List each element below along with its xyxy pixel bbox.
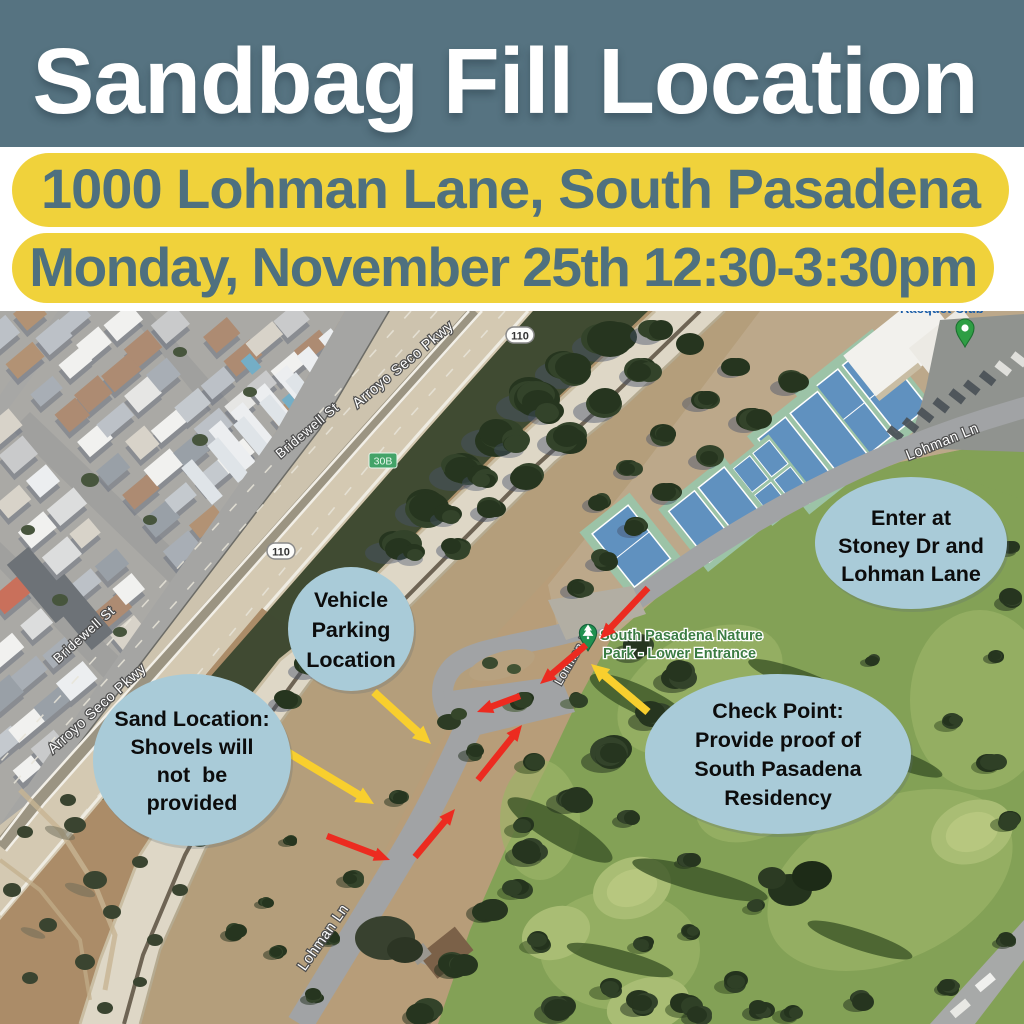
svg-text:Stoney Dr and: Stoney Dr and bbox=[838, 534, 984, 558]
svg-text:Enter at: Enter at bbox=[871, 506, 951, 530]
svg-text:Shovels will: Shovels will bbox=[130, 735, 253, 759]
svg-text:South Pasadena: South Pasadena bbox=[694, 757, 862, 781]
svg-text:Racquet Club: Racquet Club bbox=[900, 311, 984, 316]
svg-text:not be: not be bbox=[157, 763, 228, 787]
svg-text:Sand Location:: Sand Location: bbox=[114, 707, 269, 731]
svg-text:South Pasadena Nature: South Pasadena Nature bbox=[600, 628, 763, 644]
svg-text:30B: 30B bbox=[374, 456, 393, 468]
svg-text:provided: provided bbox=[147, 791, 238, 815]
svg-text:Park - Lower Entrance: Park - Lower Entrance bbox=[603, 646, 756, 662]
svg-text:Vehicle: Vehicle bbox=[314, 588, 388, 612]
svg-text:Residency: Residency bbox=[724, 786, 832, 810]
svg-text:110: 110 bbox=[272, 547, 290, 559]
svg-text:Provide proof of: Provide proof of bbox=[695, 728, 862, 752]
svg-text:Parking: Parking bbox=[312, 618, 391, 642]
svg-text:Location: Location bbox=[306, 648, 396, 672]
svg-text:110: 110 bbox=[511, 331, 529, 343]
svg-text:Check Point:: Check Point: bbox=[712, 699, 843, 723]
svg-text:Lohman Lane: Lohman Lane bbox=[841, 562, 981, 586]
